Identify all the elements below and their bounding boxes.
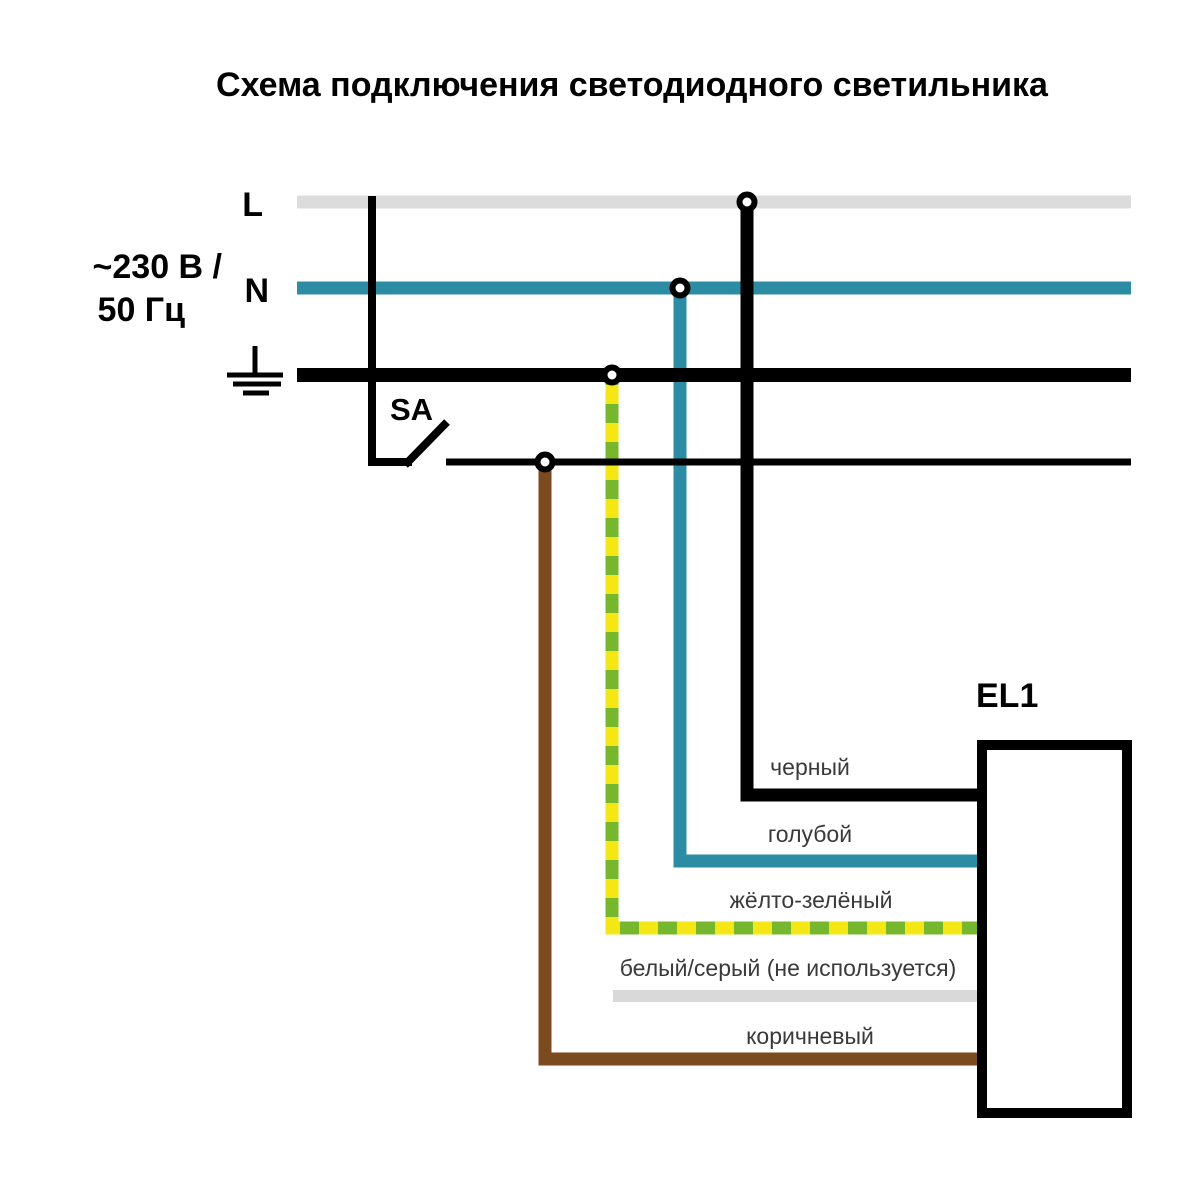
wiring-diagram-page: Схема подключения светодиодного светильн… — [0, 0, 1200, 1200]
ground-symbol — [227, 346, 283, 393]
phase-l-label: L — [242, 186, 263, 224]
wire-label-yellow-green: жёлто-зелёный — [730, 887, 893, 913]
wire-label-brown: коричневый — [746, 1023, 874, 1049]
switch-sa-label: SA — [390, 392, 433, 427]
junction-dot-neutral — [673, 281, 688, 296]
neutral-n-label: N — [244, 272, 269, 310]
luminaire-el1-label: EL1 — [976, 677, 1038, 715]
wiring-diagram-canvas: Схема подключения светодиодного светильн… — [0, 0, 1200, 1200]
diagram-title: Схема подключения светодиодного светильн… — [216, 66, 1049, 104]
wire-label-black: черный — [770, 754, 850, 780]
luminaire-box — [982, 745, 1127, 1113]
junction-dot-pe — [605, 368, 620, 383]
junction-dot-phase — [740, 195, 755, 210]
junction-dot-switched — [538, 455, 553, 470]
wire-label-blue: голубой — [768, 821, 852, 847]
switch-blade — [405, 422, 447, 465]
wire-label-white-gray: белый/серый (не используется) — [620, 955, 956, 981]
voltage-label-line1: ~230 В / — [93, 248, 223, 286]
voltage-label-line2: 50 Гц — [98, 291, 186, 329]
